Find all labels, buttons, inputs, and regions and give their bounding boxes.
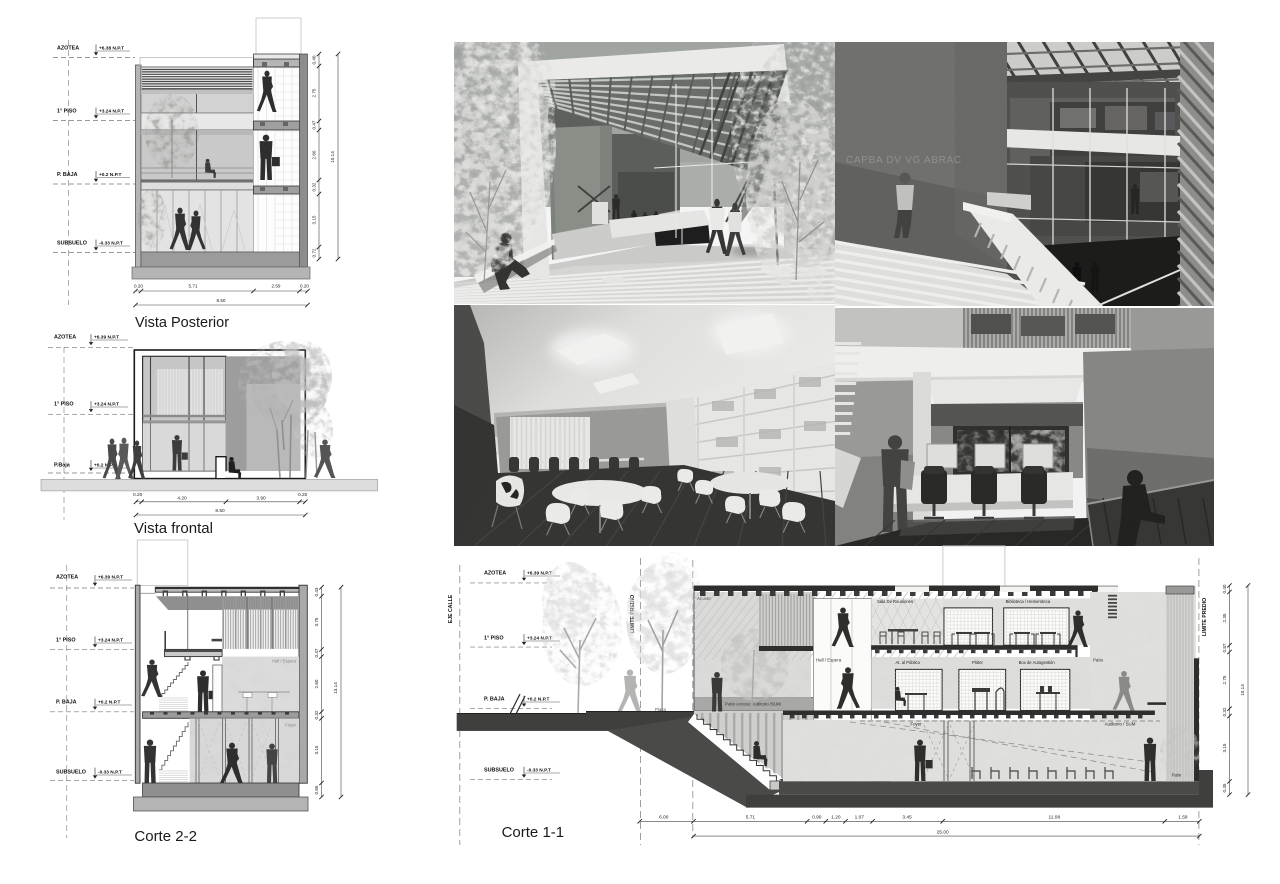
svg-text:1° PISO: 1° PISO — [57, 109, 77, 115]
svg-text:AZOTEA: AZOTEA — [56, 575, 78, 581]
svg-text:0.40: 0.40 — [1222, 584, 1227, 593]
svg-text:1.07: 1.07 — [855, 815, 865, 821]
svg-text:+3.24 N.P.T: +3.24 N.P.T — [98, 638, 123, 644]
svg-text:Patio: Patio — [1093, 658, 1104, 663]
svg-text:0.90: 0.90 — [812, 815, 822, 821]
svg-text:Vista frontal: Vista frontal — [134, 520, 213, 537]
svg-text:3.90: 3.90 — [256, 495, 266, 501]
svg-text:AZOTEA: AZOTEA — [484, 571, 506, 577]
svg-text:Auditorio / SUM: Auditorio / SUM — [1105, 722, 1136, 727]
svg-text:25.00: 25.00 — [937, 829, 949, 835]
svg-text:2.59: 2.59 — [272, 284, 281, 289]
svg-text:0.32: 0.32 — [312, 182, 317, 191]
svg-text:Foyer: Foyer — [910, 722, 922, 727]
svg-text:SUBSUELO: SUBSUELO — [484, 768, 514, 774]
svg-text:1° PISO: 1° PISO — [484, 636, 504, 642]
svg-text:Corte 2-2: Corte 2-2 — [134, 828, 197, 845]
svg-text:0.47: 0.47 — [314, 648, 319, 657]
svg-text:Hall / Espera: Hall / Espera — [272, 659, 297, 664]
svg-text:Biblioteca / Hemeroteca: Biblioteca / Hemeroteca — [1006, 599, 1051, 604]
svg-text:Plóter: Plóter — [972, 660, 984, 665]
svg-text:0.20: 0.20 — [300, 284, 309, 289]
svg-text:2.75: 2.75 — [312, 88, 317, 97]
svg-text:Patio: Patio — [1172, 773, 1182, 778]
svg-text:Sala De Reuniones: Sala De Reuniones — [877, 599, 913, 604]
svg-text:-0.33 N.P.T: -0.33 N.P.T — [99, 241, 123, 247]
svg-text:1° PISO: 1° PISO — [56, 638, 76, 644]
svg-text:2.75: 2.75 — [1222, 675, 1227, 684]
svg-text:2.35: 2.35 — [1222, 613, 1227, 622]
svg-text:0.32: 0.32 — [1222, 707, 1227, 716]
svg-text:3.75: 3.75 — [314, 617, 319, 626]
svg-text:Patio Acceso Auditorio /SUM: Patio Acceso Auditorio /SUM — [725, 702, 781, 707]
svg-text:P. BAJA: P. BAJA — [57, 172, 78, 178]
svg-text:LIMITE PREDIO: LIMITE PREDIO — [1202, 598, 1208, 636]
svg-text:+0.2 N.P.T: +0.2 N.P.T — [527, 697, 550, 703]
svg-text:1.20: 1.20 — [831, 815, 841, 821]
svg-text:4.20: 4.20 — [177, 495, 187, 501]
svg-text:3.15: 3.15 — [1222, 743, 1227, 752]
svg-text:SUBSUELO: SUBSUELO — [56, 770, 86, 776]
svg-text:6.00: 6.00 — [659, 815, 669, 821]
svg-text:10.14: 10.14 — [1240, 684, 1245, 696]
svg-text:5.71: 5.71 — [746, 815, 756, 821]
svg-text:3.15: 3.15 — [312, 215, 317, 224]
svg-text:Box de Autogestión: Box de Autogestión — [1019, 660, 1056, 665]
svg-text:At. al Público: At. al Público — [896, 660, 921, 665]
svg-text:0.72: 0.72 — [312, 248, 317, 257]
svg-text:8.50: 8.50 — [217, 298, 226, 303]
svg-text:2.60: 2.60 — [312, 150, 317, 159]
svg-text:EJE CALLE: EJE CALLE — [448, 594, 454, 623]
svg-text:+0.2 N.P.T: +0.2 N.P.T — [98, 700, 121, 706]
svg-text:SUBSUELO: SUBSUELO — [57, 241, 87, 247]
svg-text:8.50: 8.50 — [215, 508, 225, 514]
svg-text:0.87: 0.87 — [1222, 643, 1227, 652]
svg-text:Foyer: Foyer — [285, 723, 296, 728]
svg-text:+6.39 N.P.T: +6.39 N.P.T — [94, 335, 119, 341]
svg-text:+3.24 N.P.T: +3.24 N.P.T — [94, 402, 119, 408]
svg-text:AZOTEA: AZOTEA — [57, 46, 79, 52]
svg-text:+6.39 N.P.T: +6.39 N.P.T — [527, 571, 552, 577]
svg-text:-0.33 N.P.T: -0.33 N.P.T — [527, 768, 551, 774]
svg-text:13.14: 13.14 — [333, 682, 338, 694]
svg-text:Corte 1-1: Corte 1-1 — [502, 824, 565, 841]
svg-text:-0.33 N.P.T: -0.33 N.P.T — [98, 770, 122, 776]
svg-text:1° PISO: 1° PISO — [54, 402, 74, 408]
svg-text:0.20: 0.20 — [134, 284, 143, 289]
svg-text:0.45: 0.45 — [1222, 783, 1227, 792]
svg-text:0.40: 0.40 — [312, 55, 317, 64]
svg-text:0.20: 0.20 — [133, 492, 143, 498]
svg-text:AZOTEA: AZOTEA — [54, 335, 76, 341]
svg-text:11.08: 11.08 — [1048, 815, 1060, 821]
svg-text:P.Baja: P.Baja — [54, 463, 71, 469]
svg-text:5.71: 5.71 — [189, 284, 198, 289]
svg-text:+6.38 N.P.T: +6.38 N.P.T — [99, 46, 124, 52]
svg-text:0.47: 0.47 — [312, 120, 317, 129]
svg-text:+0.2 N.P.T: +0.2 N.P.T — [99, 172, 122, 178]
svg-text:0.43: 0.43 — [314, 587, 319, 596]
svg-text:Hall / Espera: Hall / Espera — [816, 658, 842, 663]
svg-text:0.65: 0.65 — [314, 785, 319, 794]
svg-text:+3.24 N.P.T: +3.24 N.P.T — [99, 109, 124, 115]
svg-text:2.60: 2.60 — [314, 679, 319, 688]
svg-text:0.20: 0.20 — [298, 492, 308, 498]
svg-text:10.14: 10.14 — [330, 151, 335, 163]
svg-text:+6.39 N.P.T: +6.39 N.P.T — [98, 575, 123, 581]
svg-text:P. BAJA: P. BAJA — [484, 697, 505, 703]
svg-text:P. BAJA: P. BAJA — [56, 700, 77, 706]
svg-text:3.45: 3.45 — [902, 815, 912, 821]
svg-text:3.15: 3.15 — [314, 745, 319, 754]
svg-text:0.32: 0.32 — [314, 710, 319, 719]
svg-text:1.58: 1.58 — [1178, 815, 1188, 821]
svg-text:Vista Posterior: Vista Posterior — [135, 315, 229, 331]
